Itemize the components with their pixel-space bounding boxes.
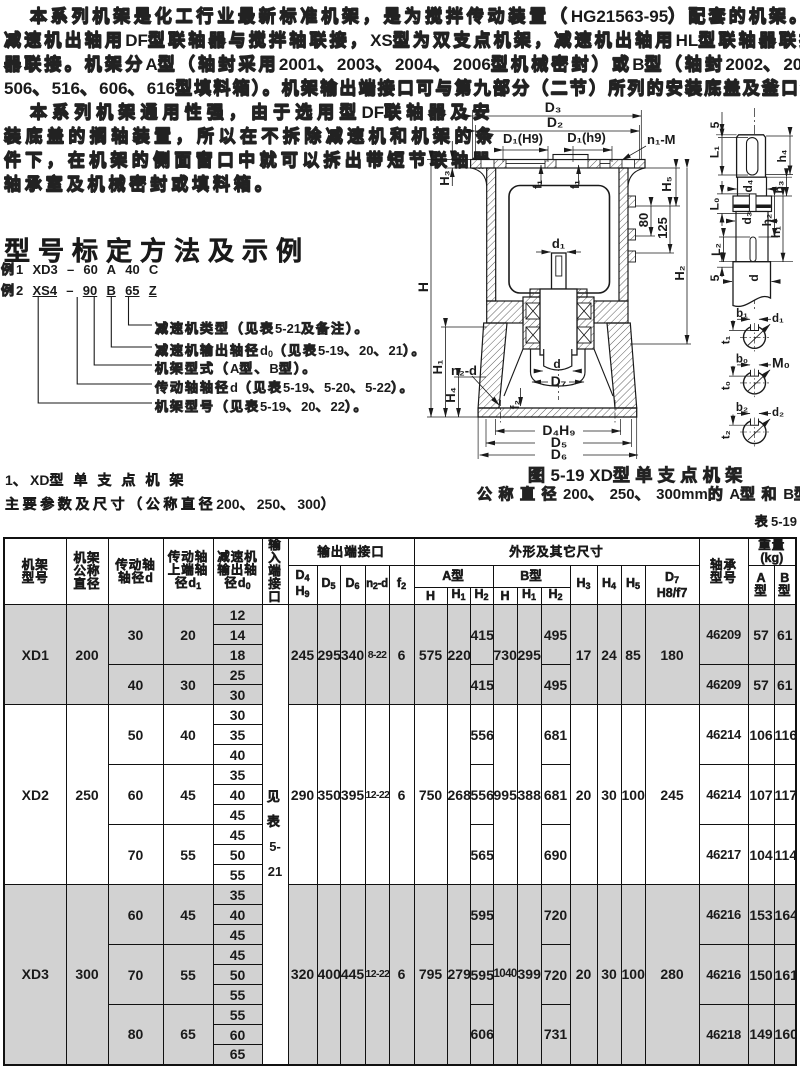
svg-text:f₂: f₂ — [508, 400, 522, 409]
svg-text:H₁: H₁ — [430, 360, 445, 375]
svg-text:D₁(h9): D₁(h9) — [567, 130, 606, 145]
svg-text:n₁-M: n₁-M — [647, 132, 675, 147]
svg-text:80: 80 — [636, 213, 651, 227]
svg-text:h₃: h₃ — [772, 181, 786, 194]
svg-text:H₃: H₃ — [437, 170, 452, 185]
svg-text:t₂: t₂ — [721, 430, 733, 439]
svg-text:d₁: d₁ — [772, 313, 784, 325]
svg-text:L₁: L₁ — [708, 146, 722, 158]
svg-text:h₂: h₂ — [760, 214, 774, 227]
svg-text:f₁: f₁ — [531, 180, 545, 189]
svg-text:h₄: h₄ — [775, 149, 789, 162]
svg-text:d₂: d₂ — [772, 407, 784, 419]
svg-text:t₁: t₁ — [721, 335, 733, 344]
svg-text:D₁(H9): D₁(H9) — [503, 131, 543, 146]
svg-text:b₁: b₁ — [736, 308, 748, 320]
svg-text:D₂: D₂ — [547, 114, 563, 130]
svg-text:H: H — [415, 282, 431, 292]
svg-text:D₆: D₆ — [551, 446, 567, 462]
svg-text:n₂-d: n₂-d — [451, 363, 477, 378]
svg-text:H₄: H₄ — [443, 387, 458, 403]
svg-text:L₂: L₂ — [709, 243, 723, 256]
svg-text:f₁: f₁ — [568, 180, 582, 189]
svg-text:H₅: H₅ — [659, 176, 674, 191]
svg-text:t₀: t₀ — [721, 381, 733, 390]
svg-text:M₀: M₀ — [772, 355, 790, 371]
svg-text:b₀: b₀ — [736, 354, 748, 366]
svg-text:125: 125 — [655, 217, 670, 239]
svg-text:5: 5 — [708, 274, 722, 281]
svg-text:D₇: D₇ — [551, 373, 567, 389]
svg-text:h₁: h₁ — [769, 226, 783, 238]
svg-text:H₂: H₂ — [672, 265, 687, 280]
svg-text:b₂: b₂ — [736, 402, 748, 414]
svg-text:5: 5 — [708, 121, 722, 128]
svg-text:D₃: D₃ — [545, 99, 562, 115]
svg-text:d₄: d₄ — [741, 179, 755, 192]
svg-text:d: d — [553, 357, 560, 371]
svg-text:L₀: L₀ — [708, 198, 722, 211]
svg-text:d: d — [747, 274, 761, 281]
svg-text:d₃: d₃ — [740, 212, 754, 225]
svg-text:d₁: d₁ — [552, 236, 565, 251]
